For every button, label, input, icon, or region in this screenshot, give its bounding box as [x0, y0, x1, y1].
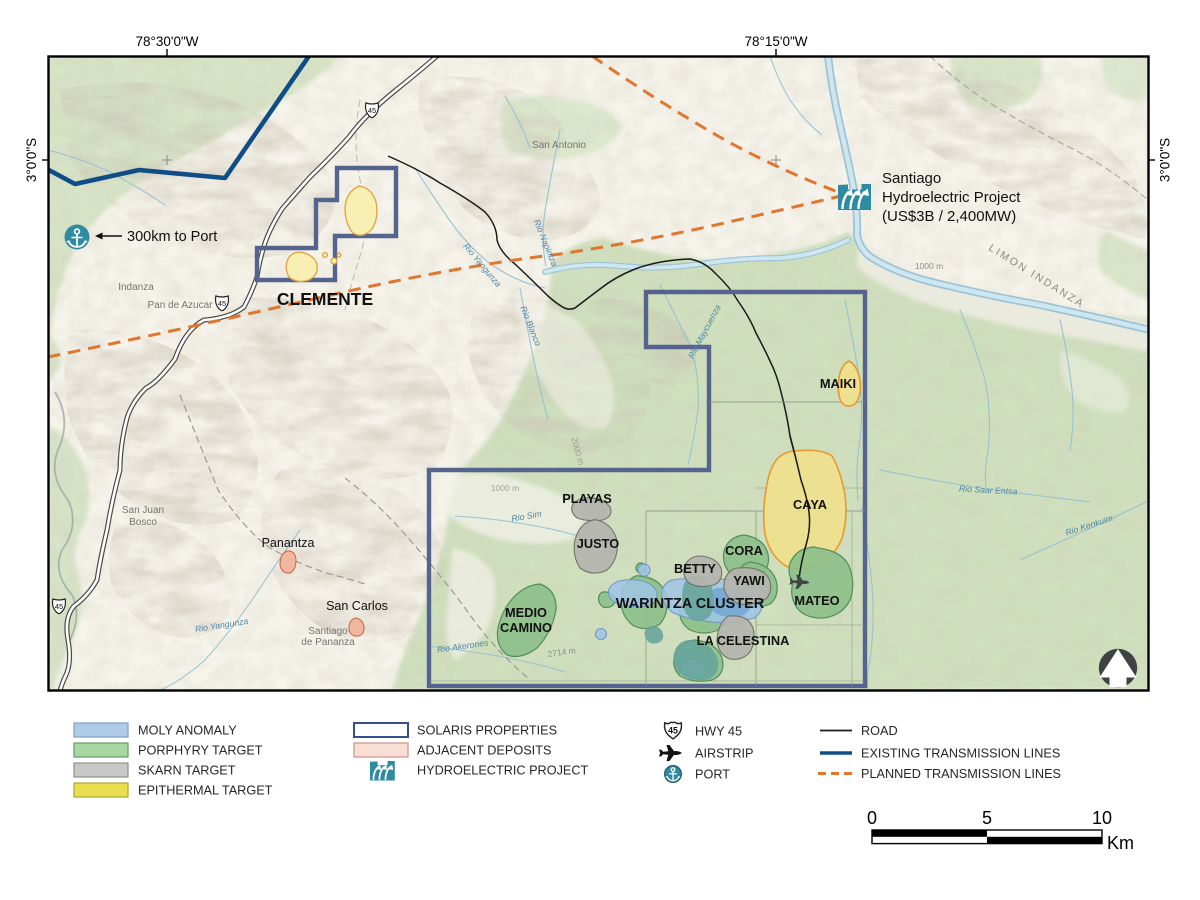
- svg-text:Km: Km: [1107, 833, 1134, 853]
- svg-text:CLEMENTE: CLEMENTE: [277, 289, 373, 309]
- svg-text:de Pananza: de Pananza: [301, 637, 355, 648]
- svg-text:CAMINO: CAMINO: [500, 620, 552, 635]
- svg-text:EPITHERMAL TARGET: EPITHERMAL TARGET: [138, 784, 273, 798]
- svg-text:10: 10: [1092, 808, 1112, 828]
- svg-text:San Carlos: San Carlos: [326, 599, 388, 613]
- svg-text:YAWI: YAWI: [733, 573, 765, 588]
- svg-text:45: 45: [668, 726, 678, 736]
- svg-text:1000 m: 1000 m: [915, 261, 943, 271]
- svg-text:3°0'0"S: 3°0'0"S: [24, 138, 39, 182]
- svg-text:PLANNED TRANSMISSION LINES: PLANNED TRANSMISSION LINES: [861, 767, 1061, 781]
- svg-text:LA CELESTINA: LA CELESTINA: [697, 633, 790, 648]
- svg-text:78°15'0"W: 78°15'0"W: [744, 34, 807, 49]
- svg-text:3°0'0"S: 3°0'0"S: [1158, 138, 1173, 182]
- svg-text:Santiago: Santiago: [308, 626, 348, 637]
- svg-text:San Antonio: San Antonio: [532, 140, 586, 151]
- svg-text:ROAD: ROAD: [861, 724, 898, 738]
- svg-text:WARINTZA CLUSTER: WARINTZA CLUSTER: [616, 596, 765, 612]
- svg-text:Hydroelectric Project: Hydroelectric Project: [882, 189, 1021, 206]
- svg-text:MATEO: MATEO: [794, 593, 839, 608]
- svg-text:Bosco: Bosco: [129, 517, 157, 528]
- svg-text:AIRSTRIP: AIRSTRIP: [695, 747, 754, 761]
- svg-text:5: 5: [982, 808, 992, 828]
- svg-text:300km to Port: 300km to Port: [127, 229, 217, 245]
- svg-text:CORA: CORA: [725, 543, 763, 558]
- svg-text:Indanza: Indanza: [118, 282, 154, 293]
- svg-text:HWY 45: HWY 45: [695, 725, 742, 739]
- svg-text:PORT: PORT: [695, 768, 730, 782]
- svg-text:SOLARIS PROPERTIES: SOLARIS PROPERTIES: [417, 724, 557, 738]
- svg-text:MAIKI: MAIKI: [820, 376, 856, 391]
- svg-text:1000 m: 1000 m: [491, 483, 519, 493]
- svg-text:San Juan: San Juan: [122, 505, 164, 516]
- svg-text:(US$3B / 2,400MW): (US$3B / 2,400MW): [882, 208, 1016, 225]
- svg-text:HYDROELECTRIC PROJECT: HYDROELECTRIC PROJECT: [417, 764, 589, 778]
- svg-text:EXISTING TRANSMISSION LINES: EXISTING TRANSMISSION LINES: [861, 747, 1060, 761]
- svg-text:MEDIO: MEDIO: [505, 605, 547, 620]
- svg-text:78°30'0"W: 78°30'0"W: [135, 34, 198, 49]
- svg-text:SKARN TARGET: SKARN TARGET: [138, 764, 236, 778]
- svg-text:0: 0: [867, 808, 877, 828]
- svg-text:Santiago: Santiago: [882, 170, 941, 187]
- svg-text:BETTY: BETTY: [674, 561, 716, 576]
- svg-text:MOLY ANOMALY: MOLY ANOMALY: [138, 724, 237, 738]
- svg-text:45: 45: [368, 106, 376, 115]
- svg-text:ADJACENT DEPOSITS: ADJACENT DEPOSITS: [417, 744, 551, 758]
- svg-text:PLAYAS: PLAYAS: [562, 491, 612, 506]
- svg-text:JUSTO: JUSTO: [577, 536, 619, 551]
- svg-text:CAYA: CAYA: [793, 497, 827, 512]
- svg-text:Pan de Azucar: Pan de Azucar: [147, 300, 213, 311]
- svg-text:Panantza: Panantza: [262, 536, 315, 550]
- svg-text:PORPHYRY TARGET: PORPHYRY TARGET: [138, 744, 263, 758]
